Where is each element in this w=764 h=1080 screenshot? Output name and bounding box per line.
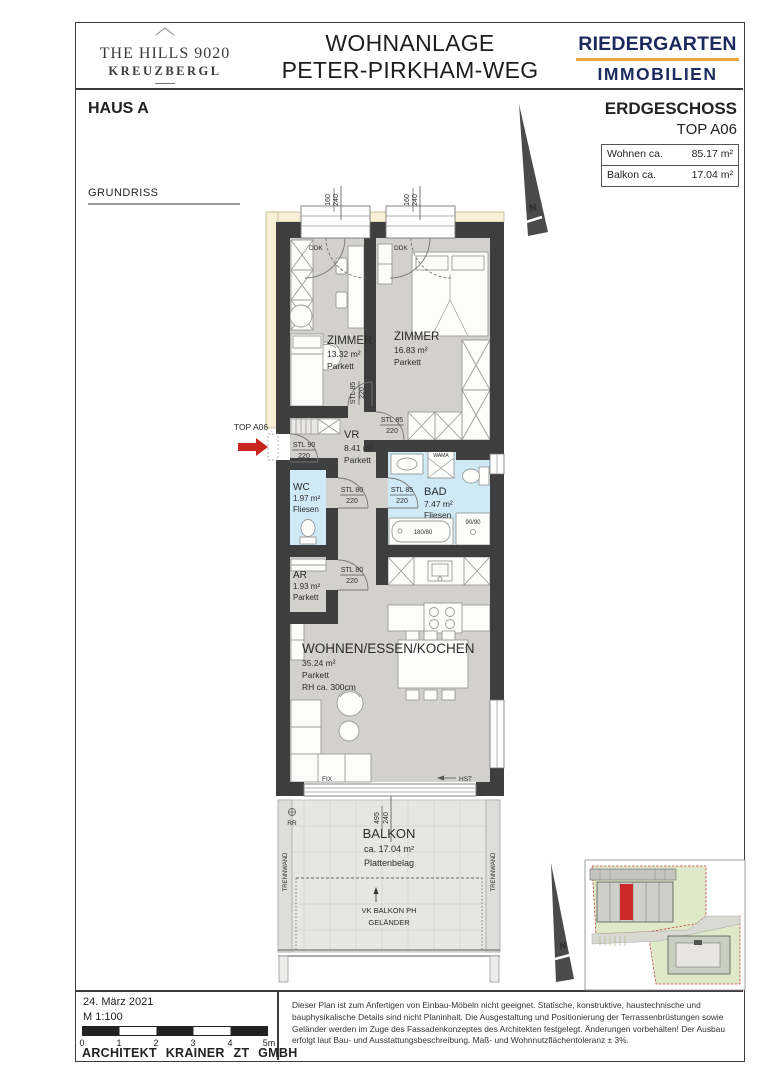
north-arrow-top: N [519, 104, 548, 236]
ar-door-type: STL 80 [341, 567, 363, 574]
room-wc-name: WC [293, 482, 310, 493]
wama-label: WAMA [433, 453, 449, 459]
balcony-door-height: 240 [383, 812, 390, 824]
plan-sheet: { "header": { "brand_left": {"line1": "T… [0, 0, 764, 1080]
steps [291, 419, 318, 434]
chair [424, 690, 437, 700]
building-haus-a [597, 882, 673, 922]
toilet-tank [300, 537, 316, 544]
bad-door-type: STL 85 [391, 487, 413, 494]
room-zimmer1-area: 13.32 m² [327, 349, 361, 359]
hst-label: HST [459, 776, 472, 783]
room-ar-name: AR [293, 570, 307, 581]
ddk-label: DDK [309, 245, 323, 252]
chair [442, 690, 455, 700]
room-zimmer2-area: 16.83 m² [394, 345, 428, 355]
armchair-round [337, 690, 363, 716]
room-wc-floor: Fliesen [293, 505, 319, 514]
room-vr-name: VR [344, 429, 359, 441]
window1-width: 160 [325, 194, 332, 206]
room-ar-area: 1.93 m² [293, 582, 320, 591]
chair [442, 631, 455, 640]
room-wohnen-name: WOHNEN/ESSEN/KOCHEN [302, 641, 475, 656]
plan-date: 24. März 2021 [83, 996, 153, 1008]
coffee-table [339, 721, 359, 741]
room-bad-name: BAD [424, 486, 447, 498]
room-wohnen-area: 35.24 m² [302, 658, 336, 668]
ddk-label: DDK [394, 245, 408, 252]
shower [456, 513, 490, 545]
vr-niche [291, 419, 340, 434]
room-bad-floor: Fliesen [424, 510, 452, 520]
toilet [463, 469, 480, 483]
shower-size-label: 90/90 [465, 520, 481, 526]
trennwand-left-label: TRENNWAND [283, 852, 289, 891]
zimmer1-door-height: 220 [359, 387, 366, 399]
ar-door-height: 220 [346, 578, 358, 585]
bathtub-size-label: 180/80 [414, 530, 433, 536]
room-zimmer2-name: ZIMMER [394, 331, 439, 343]
architect-label: ARCHITEKT KRAINER ZT GMBH [82, 1046, 298, 1060]
rr-label: RR [287, 820, 297, 827]
trennwand-right-label: TRENNWAND [491, 852, 497, 891]
gelaender-label: GELÄNDER [368, 918, 410, 927]
furniture-wc [300, 520, 316, 545]
floorplan-drawing: RR TRENNWAND TRENNWAND 495 240 BALKON ca… [0, 0, 764, 1080]
room-wohnen-height: RH ca. 300cm [302, 682, 356, 692]
balcony: RR TRENNWAND TRENNWAND 495 240 BALKON ca… [278, 796, 500, 982]
balcony-door-width: 495 [374, 812, 381, 824]
entrance-marker: TOP A06 [234, 422, 268, 456]
entrance-door-type: STL 90 [293, 442, 315, 449]
washbasin [397, 458, 417, 470]
room-vr-floor: Parkett [344, 455, 372, 465]
room-wc-area: 1.97 m² [293, 494, 320, 503]
stove [424, 603, 462, 633]
side-table [290, 305, 312, 327]
zimmer2-door-height: 220 [386, 428, 398, 435]
highlighted-unit [620, 884, 633, 920]
vk-balkon-label: VK BALKON PH [361, 906, 416, 915]
scale-bar [82, 1026, 272, 1038]
site-plan-map [585, 860, 745, 990]
entrance-unit-label: TOP A06 [234, 422, 268, 432]
room-ar-floor: Parkett [293, 593, 319, 602]
window-zimmer2 [386, 206, 455, 238]
window2-width: 160 [404, 194, 411, 206]
desk [348, 246, 364, 328]
toilet-tank [479, 467, 489, 485]
window1-height: 240 [333, 194, 340, 206]
north-arrow-bottom: N [551, 863, 574, 982]
zimmer2-door-type: STL 85 [381, 417, 403, 424]
fix-label: FIX [322, 776, 333, 783]
garage-row [590, 869, 676, 880]
window2-height: 240 [412, 194, 419, 206]
bad-door-height: 220 [396, 498, 408, 505]
entrance-door-height: 220 [298, 453, 310, 460]
entrance-threshold [268, 434, 278, 460]
room-zimmer1-floor: Parkett [327, 361, 355, 371]
toilet [301, 520, 315, 537]
wc-door-type: STL 80 [341, 487, 363, 494]
chair [406, 631, 419, 640]
pillow [452, 256, 484, 270]
disclaimer-text: Dieser Plan ist zum Anfertigen von Einba… [292, 1000, 738, 1047]
room-balkon-name: BALKON [363, 826, 416, 841]
room-vr-area: 8.41 m² [344, 443, 373, 453]
chair [406, 690, 419, 700]
chair [336, 292, 347, 308]
shaft-band [456, 452, 490, 460]
room-balkon-area: ca. 17.04 m² [364, 844, 414, 854]
plan-scale: M 1:100 [83, 1011, 123, 1023]
room-zimmer2-floor: Parkett [394, 357, 422, 367]
railing-post-right [490, 956, 499, 982]
wc-door-height: 220 [346, 498, 358, 505]
glazing-south [304, 784, 476, 796]
entrance-arrow-icon [238, 438, 268, 456]
pillow [293, 336, 321, 348]
chair [424, 631, 437, 640]
railing-post-left [279, 956, 288, 982]
room-bad-area: 7.47 m² [424, 499, 453, 509]
room-wohnen-floor: Parkett [302, 670, 330, 680]
room-zimmer1-name: ZIMMER [327, 335, 372, 347]
window-zimmer1 [301, 206, 370, 238]
room-balkon-floor: Plattenbelag [364, 858, 414, 868]
zimmer1-door-type: STL 85 [350, 382, 357, 404]
